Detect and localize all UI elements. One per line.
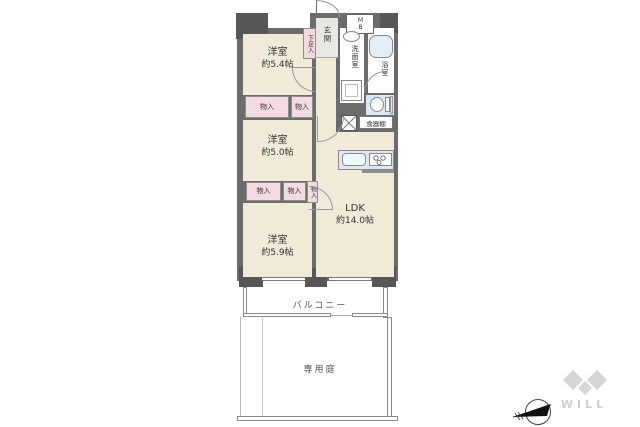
room-label-yoshitsu-c: 洋室 約5.9帖 (243, 235, 312, 259)
room-label-ldk: LDK 約14.0帖 (316, 203, 394, 227)
room-name: 洋室 (243, 235, 312, 248)
entrance-door-arc (316, 0, 340, 17)
room-name: 洋室 (243, 135, 312, 148)
room-name: 洋室 (243, 47, 312, 60)
stove-icon (369, 153, 392, 166)
garden-line-left-outer (240, 317, 241, 417)
balcony-fence-gap-line (331, 315, 352, 316)
counter-edge-shadow (362, 170, 394, 173)
compass-icon (505, 392, 557, 427)
storage-box-3: 物入 (246, 182, 281, 201)
window-right (329, 277, 371, 281)
balcony-rail-left (243, 287, 247, 315)
washroom-label: 洗面室 (345, 45, 358, 85)
balcony-label: バルコニー (275, 298, 365, 311)
storage-label: 物入 (260, 104, 274, 111)
garden-fence-right (387, 317, 392, 417)
washing-machine-pan (341, 80, 362, 101)
room-size: 約5.4帖 (243, 60, 312, 71)
storage-label: 物入 (288, 188, 302, 195)
balcony-fence-left (243, 313, 331, 317)
storage-box-1: 物入 (245, 96, 289, 118)
floor-plan: 物入 物入 物入 物入 物入 下足入 MB 洗面室 浴室 食器棚 (0, 0, 640, 427)
window-left (262, 277, 305, 281)
logo-diamond-center (578, 381, 592, 395)
storage-box-4: 物入 (283, 182, 306, 201)
private-garden-label: 専用庭 (275, 362, 365, 375)
storage-label: 物入 (257, 188, 271, 195)
balcony-fence-right (352, 313, 388, 317)
storage-box-2: 物入 (291, 96, 313, 118)
room-label-yoshitsu-a: 洋室 約5.4帖 (243, 47, 312, 71)
brand-name: WILL (561, 398, 607, 411)
brand-logo: WILL (553, 366, 615, 412)
room-name: LDK (316, 203, 394, 216)
storage-label: 物入 (295, 104, 309, 111)
toilet-bowl-icon (370, 97, 384, 112)
room-label-yoshitsu-b: 洋室 約5.0帖 (243, 135, 312, 159)
cupboard-box: 食器棚 (359, 116, 393, 129)
room-size: 約14.0帖 (316, 216, 394, 227)
garden-fence-bottom (237, 416, 398, 421)
cupboard-label: 食器棚 (366, 118, 386, 128)
door-leaf-ldk (317, 116, 318, 142)
entrance-door-leaf (316, 0, 317, 17)
entrance-label: 玄関 (318, 26, 331, 62)
kitchen-sink-icon (342, 153, 366, 166)
pipe-space-x-icon (342, 116, 356, 130)
meter-box-label: MB (357, 17, 363, 31)
bathtub-icon (369, 35, 393, 58)
room-size: 約5.9帖 (243, 248, 312, 259)
room-size: 約5.0帖 (243, 148, 312, 159)
toilet-door (390, 96, 393, 114)
washbasin-icon (343, 31, 360, 42)
garden-line-left-inner (262, 318, 263, 416)
